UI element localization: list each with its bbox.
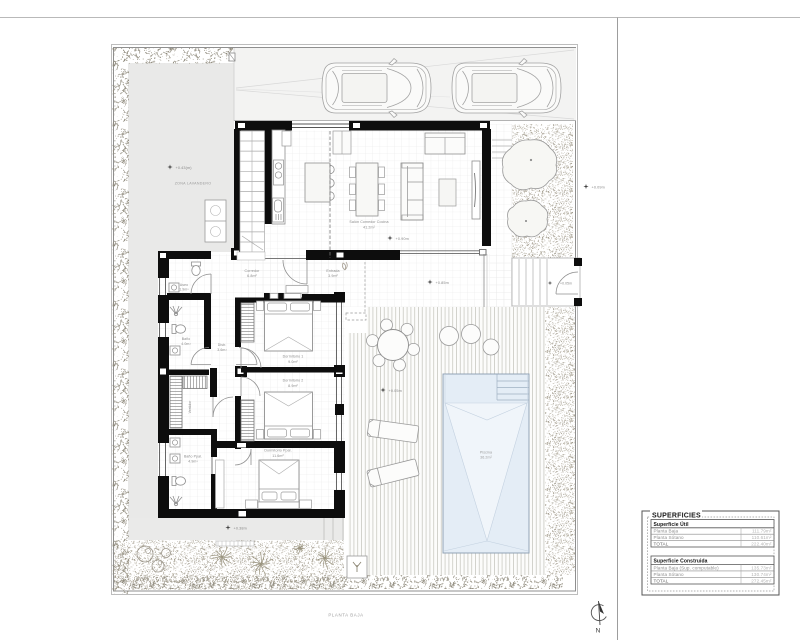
svg-text:Planta Baja (Sup. computable): Planta Baja (Sup. computable)	[654, 565, 720, 570]
svg-text:Entrada: Entrada	[326, 269, 339, 273]
svg-text:3.6m²: 3.6m²	[217, 348, 227, 352]
svg-text:Superficie Construida: Superficie Construida	[654, 559, 708, 565]
svg-text:41.2m²: 41.2m²	[363, 226, 375, 230]
svg-text:9.0m²: 9.0m²	[288, 360, 298, 364]
svg-text:272.45m²: 272.45m²	[751, 578, 772, 583]
svg-text:Planta Baja: Planta Baja	[654, 529, 679, 534]
svg-text:+0.90m: +0.90m	[396, 237, 409, 241]
svg-text:222.40m²: 222.40m²	[751, 542, 772, 547]
svg-text:+0.05m: +0.05m	[389, 389, 402, 393]
svg-text:PLANTA BAJA: PLANTA BAJA	[328, 613, 363, 618]
svg-text:8.9m²: 8.9m²	[288, 384, 298, 388]
svg-text:Aseo: Aseo	[180, 283, 188, 287]
svg-text:Dormitorio 1: Dormitorio 1	[283, 355, 304, 359]
svg-text:Planta Sótano: Planta Sótano	[654, 572, 685, 577]
svg-text:Distr.: Distr.	[218, 343, 227, 347]
svg-text:+0.38m: +0.38m	[234, 526, 247, 530]
svg-text:130.74m²: 130.74m²	[751, 572, 772, 577]
svg-text:TOTAL: TOTAL	[654, 542, 669, 547]
svg-text:Superficie Útil: Superficie Útil	[654, 521, 690, 528]
svg-text:Corredor: Corredor	[245, 269, 261, 273]
svg-text:Piscina: Piscina	[480, 451, 492, 455]
svg-text:111.79m²: 111.79m²	[752, 529, 772, 534]
svg-text:4.9m²: 4.9m²	[188, 460, 198, 464]
svg-text:Baño: Baño	[182, 337, 191, 341]
svg-text:N: N	[596, 628, 601, 635]
svg-text:+0.05m: +0.05m	[560, 282, 572, 286]
svg-text:135.73m²: 135.73m²	[751, 565, 772, 570]
svg-text:+0.85m: +0.85m	[436, 281, 449, 285]
svg-text:ZONA LAVANDERO: ZONA LAVANDERO	[175, 182, 212, 186]
svg-text:Vestidor: Vestidor	[188, 400, 192, 413]
svg-text:Salón Comedor Cocina: Salón Comedor Cocina	[349, 220, 388, 224]
svg-text:1.9m²: 1.9m²	[179, 288, 189, 292]
svg-text:+0.09m: +0.09m	[592, 185, 605, 189]
svg-text:3.9m²: 3.9m²	[328, 274, 338, 278]
svg-text:Dormitorio Ppal.: Dormitorio Ppal.	[264, 449, 291, 453]
svg-text:6.8m²: 6.8m²	[247, 274, 257, 278]
svg-text:TOTAL: TOTAL	[654, 578, 669, 583]
svg-text:Baño Ppal.: Baño Ppal.	[184, 455, 202, 459]
svg-text:36.2m²: 36.2m²	[480, 456, 492, 460]
svg-text:SUPERFICIES: SUPERFICIES	[652, 513, 701, 520]
svg-text:4.0m²: 4.0m²	[181, 342, 191, 346]
svg-text:11.6m²: 11.6m²	[272, 454, 284, 458]
svg-text:+0.43(m): +0.43(m)	[176, 166, 193, 170]
svg-text:Dormitorio 2: Dormitorio 2	[283, 379, 304, 383]
svg-text:Planta Sótano: Planta Sótano	[654, 535, 685, 540]
svg-text:110.61m²: 110.61m²	[752, 535, 772, 540]
